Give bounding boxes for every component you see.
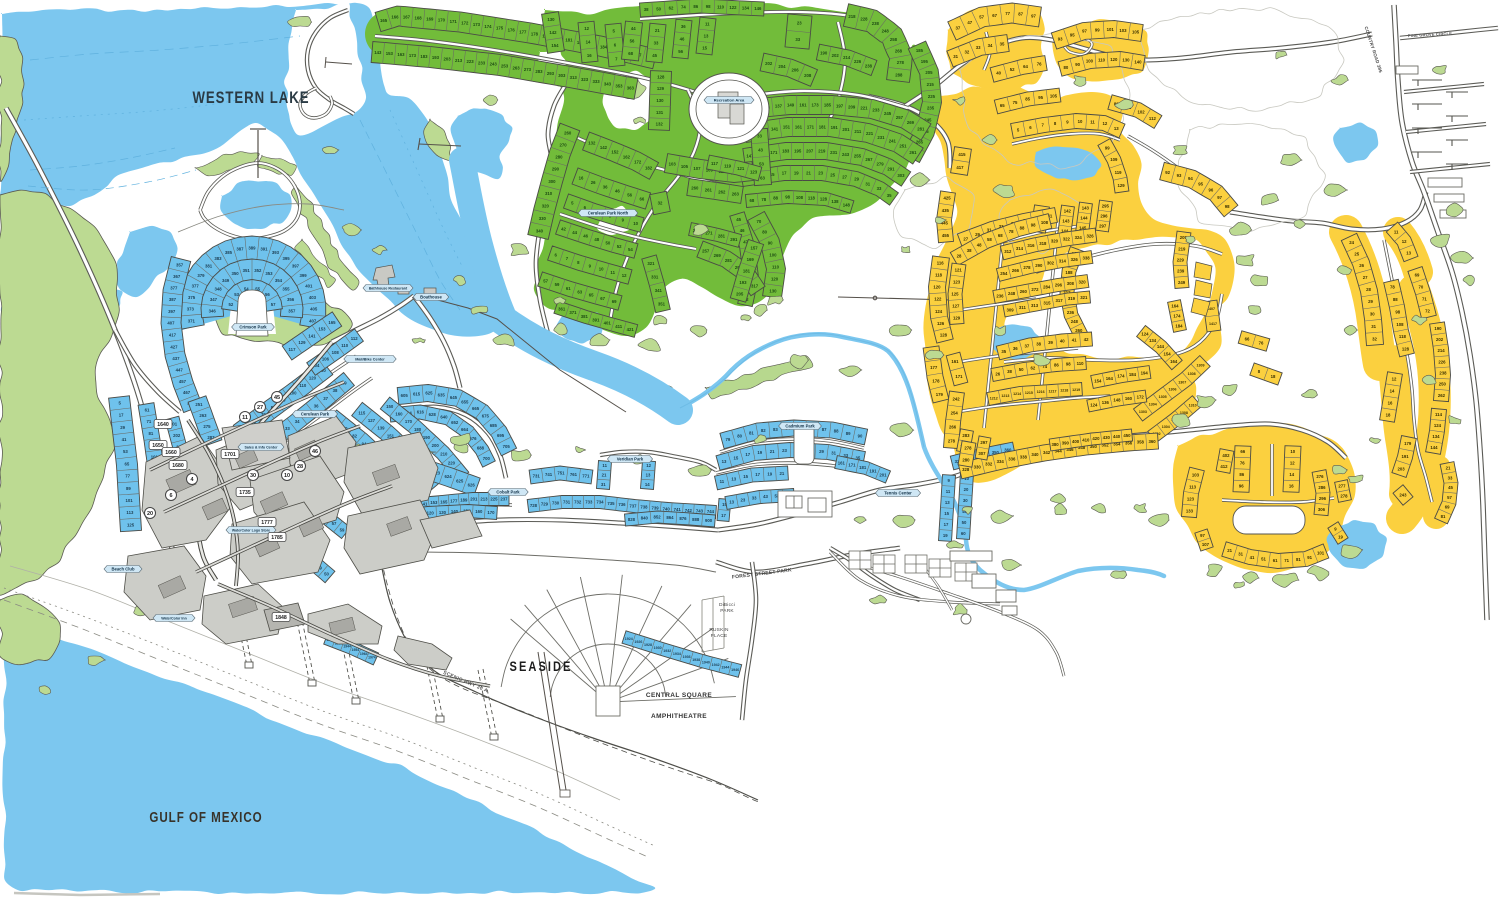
svg-text:1777: 1777	[261, 520, 273, 526]
svg-text:290: 290	[552, 167, 560, 172]
svg-text:640: 640	[440, 415, 448, 420]
svg-text:163: 163	[397, 52, 405, 57]
svg-text:138: 138	[831, 199, 839, 204]
svg-text:97: 97	[1217, 195, 1222, 200]
svg-text:389: 389	[248, 246, 256, 251]
svg-text:88: 88	[773, 196, 778, 201]
svg-text:732: 732	[574, 500, 582, 505]
svg-text:35: 35	[1001, 349, 1006, 354]
svg-text:46: 46	[740, 228, 745, 233]
svg-text:90: 90	[768, 241, 773, 246]
svg-text:303: 303	[558, 73, 566, 78]
svg-text:152: 152	[611, 150, 619, 155]
svg-text:645: 645	[450, 395, 458, 400]
svg-text:21: 21	[1446, 465, 1451, 470]
svg-text:421: 421	[627, 327, 635, 332]
svg-text:92: 92	[1165, 170, 1170, 175]
svg-text:88: 88	[1393, 297, 1398, 302]
svg-text:206: 206	[792, 68, 800, 73]
svg-text:40: 40	[996, 71, 1001, 76]
svg-text:95: 95	[1198, 182, 1203, 187]
svg-text:239: 239	[1177, 269, 1185, 274]
svg-text:178: 178	[932, 379, 940, 384]
svg-text:194: 194	[1141, 370, 1149, 375]
svg-text:75: 75	[1013, 100, 1018, 105]
svg-text:401: 401	[604, 321, 612, 326]
svg-text:177: 177	[930, 365, 938, 370]
svg-text:129: 129	[1118, 183, 1126, 188]
svg-text:278: 278	[1023, 265, 1031, 270]
svg-text:77: 77	[125, 474, 130, 479]
svg-text:237: 237	[500, 497, 508, 502]
svg-text:251: 251	[195, 402, 203, 407]
svg-text:28: 28	[297, 464, 303, 470]
svg-text:142: 142	[1064, 209, 1072, 214]
svg-text:281: 281	[917, 126, 925, 131]
svg-text:32: 32	[1372, 336, 1377, 341]
svg-text:98: 98	[1066, 362, 1071, 367]
svg-text:25: 25	[1354, 252, 1359, 257]
svg-text:63: 63	[760, 176, 765, 181]
svg-text:278: 278	[897, 60, 905, 65]
svg-text:10: 10	[1290, 449, 1295, 454]
svg-text:88: 88	[1020, 226, 1025, 231]
svg-text:312: 312	[1004, 249, 1012, 254]
svg-text:141: 141	[308, 333, 316, 338]
svg-text:728: 728	[530, 503, 538, 508]
svg-text:243: 243	[1399, 493, 1407, 498]
svg-text:333: 333	[593, 79, 601, 84]
svg-text:157: 157	[751, 245, 759, 250]
svg-text:273: 273	[524, 67, 532, 72]
svg-text:44: 44	[631, 26, 636, 31]
svg-text:318: 318	[1039, 241, 1047, 246]
svg-text:297: 297	[980, 440, 988, 445]
svg-text:1215: 1215	[1025, 391, 1033, 395]
svg-text:165: 165	[380, 18, 388, 23]
svg-text:12: 12	[1392, 377, 1397, 382]
svg-text:139: 139	[377, 426, 385, 431]
svg-text:417: 417	[956, 165, 964, 170]
svg-text:45: 45	[736, 217, 741, 222]
svg-text:113: 113	[126, 510, 134, 515]
svg-text:357: 357	[288, 309, 296, 314]
svg-text:19: 19	[767, 472, 772, 477]
svg-text:81: 81	[1296, 557, 1301, 562]
svg-text:54: 54	[628, 247, 633, 252]
svg-text:123: 123	[953, 279, 961, 284]
svg-text:255: 255	[854, 154, 862, 159]
svg-text:210: 210	[440, 452, 448, 457]
svg-text:15: 15	[944, 511, 949, 516]
svg-text:140: 140	[1134, 60, 1142, 65]
svg-text:27: 27	[1363, 275, 1368, 280]
svg-text:450: 450	[1123, 433, 1131, 438]
svg-text:63: 63	[577, 289, 582, 294]
svg-text:387: 387	[169, 297, 177, 302]
svg-text:36: 36	[314, 404, 319, 409]
svg-text:56: 56	[627, 193, 632, 198]
svg-text:170: 170	[405, 419, 413, 424]
svg-text:223: 223	[467, 59, 475, 64]
svg-text:143: 143	[1062, 219, 1070, 224]
svg-text:291: 291	[730, 237, 738, 242]
svg-text:625: 625	[456, 478, 464, 483]
svg-text:13: 13	[945, 500, 950, 505]
svg-text:76: 76	[1037, 62, 1042, 67]
svg-text:50: 50	[606, 241, 611, 246]
svg-text:248: 248	[1071, 319, 1079, 324]
svg-text:320: 320	[1079, 279, 1087, 284]
svg-text:142: 142	[600, 145, 608, 150]
svg-text:1680: 1680	[172, 463, 184, 469]
svg-text:179: 179	[936, 392, 944, 397]
svg-text:319: 319	[1068, 296, 1076, 301]
svg-text:1660: 1660	[165, 450, 177, 456]
svg-text:367: 367	[173, 274, 181, 279]
svg-text:Recreation Area: Recreation Area	[714, 98, 745, 103]
svg-text:99: 99	[1095, 28, 1100, 33]
svg-text:387: 387	[236, 247, 244, 252]
svg-text:93: 93	[1058, 37, 1063, 42]
svg-text:129: 129	[657, 86, 665, 91]
svg-text:410: 410	[1082, 437, 1090, 442]
svg-text:Sales & Info Center: Sales & Info Center	[245, 446, 279, 450]
svg-text:385: 385	[225, 250, 233, 255]
svg-text:245: 245	[884, 111, 892, 116]
svg-text:241: 241	[889, 139, 897, 144]
svg-text:97: 97	[1082, 29, 1087, 34]
svg-text:Cadmium Park: Cadmium Park	[785, 424, 815, 429]
svg-text:828: 828	[628, 517, 636, 522]
svg-text:326: 326	[1071, 257, 1079, 262]
svg-text:626: 626	[468, 482, 476, 487]
svg-text:615: 615	[413, 392, 421, 397]
svg-text:66: 66	[1245, 337, 1250, 342]
svg-text:260: 260	[564, 130, 572, 135]
svg-text:120: 120	[427, 510, 435, 515]
svg-text:23: 23	[741, 498, 746, 503]
svg-text:381: 381	[205, 264, 213, 269]
svg-text:743: 743	[696, 509, 704, 514]
svg-text:840: 840	[641, 516, 649, 521]
svg-text:214: 214	[1438, 348, 1446, 353]
svg-text:248: 248	[1008, 291, 1016, 296]
svg-text:130: 130	[1122, 58, 1130, 63]
svg-text:47: 47	[967, 20, 972, 25]
svg-text:32: 32	[658, 201, 663, 206]
svg-text:144: 144	[1430, 445, 1438, 450]
svg-text:74: 74	[681, 5, 686, 10]
svg-text:115: 115	[358, 410, 366, 415]
svg-text:57: 57	[543, 278, 548, 283]
svg-text:96: 96	[1209, 188, 1214, 193]
svg-text:76: 76	[1240, 461, 1245, 466]
svg-text:738: 738	[640, 504, 648, 509]
svg-text:71: 71	[147, 419, 152, 424]
svg-text:283: 283	[535, 69, 543, 74]
svg-text:102: 102	[1138, 109, 1146, 114]
svg-text:268: 268	[895, 48, 903, 53]
svg-text:1216: 1216	[1037, 390, 1045, 394]
svg-text:249: 249	[1178, 280, 1186, 285]
svg-text:36: 36	[1013, 346, 1018, 351]
svg-text:130: 130	[547, 17, 555, 22]
svg-text:70: 70	[757, 219, 762, 224]
svg-text:17: 17	[721, 513, 726, 518]
svg-text:81: 81	[1441, 514, 1446, 519]
svg-text:31: 31	[953, 54, 958, 59]
svg-text:78: 78	[1390, 285, 1395, 290]
svg-text:11: 11	[602, 463, 607, 468]
svg-text:129: 129	[298, 340, 306, 345]
svg-text:260: 260	[691, 186, 699, 191]
svg-text:221: 221	[866, 131, 874, 136]
svg-text:876: 876	[679, 516, 687, 521]
svg-text:76: 76	[1259, 341, 1264, 346]
svg-text:169: 169	[747, 257, 755, 262]
svg-text:29: 29	[819, 449, 824, 454]
svg-text:307: 307	[978, 451, 986, 456]
svg-text:295: 295	[1102, 204, 1110, 209]
svg-text:313: 313	[1031, 303, 1039, 308]
svg-text:263: 263	[513, 65, 521, 70]
svg-text:665: 665	[472, 406, 480, 411]
svg-text:108: 108	[796, 195, 804, 200]
svg-text:1310: 1310	[1189, 403, 1197, 407]
svg-text:105: 105	[681, 164, 689, 169]
svg-text:1932: 1932	[663, 649, 671, 653]
svg-text:1213: 1213	[1001, 394, 1009, 398]
svg-text:314: 314	[1059, 259, 1067, 264]
svg-text:314: 314	[1016, 246, 1024, 251]
svg-text:235: 235	[927, 106, 935, 111]
svg-text:736: 736	[618, 502, 626, 507]
svg-text:183: 183	[420, 54, 428, 59]
svg-text:395: 395	[283, 256, 291, 261]
svg-text:205: 205	[736, 292, 744, 297]
svg-text:191: 191	[1402, 454, 1410, 459]
svg-text:190: 190	[1434, 326, 1442, 331]
svg-text:169: 169	[426, 17, 434, 22]
svg-text:14: 14	[1390, 389, 1395, 394]
svg-text:390: 390	[1062, 440, 1070, 445]
svg-text:1735: 1735	[239, 490, 251, 496]
svg-text:336: 336	[1008, 457, 1016, 462]
svg-text:45: 45	[1448, 485, 1453, 490]
svg-text:13: 13	[1114, 126, 1119, 131]
svg-text:343: 343	[604, 81, 612, 86]
svg-text:321: 321	[1080, 295, 1088, 300]
svg-text:184: 184	[1129, 372, 1137, 377]
svg-text:243: 243	[490, 62, 498, 67]
svg-text:231: 231	[830, 150, 838, 155]
svg-text:161: 161	[951, 359, 959, 364]
svg-text:243: 243	[842, 152, 850, 157]
svg-text:313: 313	[570, 75, 578, 80]
svg-text:112: 112	[1149, 116, 1157, 121]
svg-text:28: 28	[1366, 287, 1371, 292]
svg-text:341: 341	[655, 288, 663, 293]
svg-text:108: 108	[1041, 220, 1049, 225]
svg-text:18: 18	[1271, 374, 1276, 379]
svg-text:310: 310	[545, 191, 553, 196]
svg-text:50: 50	[324, 572, 329, 577]
svg-text:61: 61	[566, 286, 571, 291]
svg-text:89: 89	[126, 486, 131, 491]
svg-text:380: 380	[1052, 442, 1060, 447]
svg-text:731: 731	[533, 474, 541, 479]
svg-text:119: 119	[724, 163, 732, 168]
svg-text:46: 46	[312, 449, 318, 455]
svg-text:171: 171	[807, 125, 815, 130]
svg-text:161: 161	[799, 103, 807, 108]
svg-text:154: 154	[1094, 378, 1102, 383]
svg-text:14: 14	[586, 40, 591, 45]
svg-text:107: 107	[693, 166, 701, 171]
svg-text:88: 88	[834, 428, 839, 433]
svg-text:188: 188	[1065, 270, 1073, 275]
svg-text:338: 338	[1083, 255, 1091, 260]
svg-text:340: 340	[536, 228, 544, 233]
svg-text:258: 258	[890, 37, 898, 42]
svg-text:173: 173	[473, 22, 481, 27]
svg-text:309: 309	[1007, 307, 1015, 312]
svg-text:181: 181	[743, 268, 751, 273]
svg-text:181: 181	[819, 125, 827, 130]
svg-text:278: 278	[1340, 494, 1348, 499]
svg-text:221: 221	[860, 106, 868, 111]
svg-text:233: 233	[872, 108, 880, 113]
svg-text:19: 19	[1338, 535, 1343, 540]
svg-text:402: 402	[1222, 453, 1230, 458]
svg-text:229: 229	[1177, 257, 1185, 262]
svg-text:11: 11	[705, 22, 710, 27]
svg-text:315: 315	[1043, 301, 1051, 306]
svg-text:146: 146	[754, 6, 762, 11]
svg-text:33: 33	[877, 186, 882, 191]
svg-text:353: 353	[265, 271, 273, 276]
svg-text:RUSKIN: RUSKIN	[709, 627, 729, 633]
svg-text:141: 141	[771, 126, 779, 131]
svg-text:231: 231	[877, 135, 885, 140]
svg-text:236: 236	[996, 293, 1004, 298]
svg-text:124: 124	[935, 309, 943, 314]
svg-text:437: 437	[172, 356, 180, 361]
svg-text:95: 95	[1038, 95, 1043, 100]
svg-text:124: 124	[1434, 423, 1442, 428]
svg-text:31: 31	[1371, 324, 1376, 329]
svg-text:108: 108	[1396, 322, 1404, 327]
svg-text:281: 281	[725, 258, 733, 263]
svg-text:11: 11	[1394, 229, 1399, 234]
svg-text:11: 11	[946, 489, 951, 494]
svg-text:20: 20	[147, 511, 153, 517]
svg-text:427: 427	[170, 344, 178, 349]
svg-text:1848: 1848	[275, 615, 287, 621]
svg-text:332: 332	[985, 462, 993, 467]
svg-text:130: 130	[656, 98, 664, 103]
svg-text:371: 371	[569, 310, 577, 315]
svg-text:17: 17	[119, 413, 124, 418]
svg-text:204: 204	[778, 64, 786, 69]
svg-text:Cerulean Park North: Cerulean Park North	[588, 211, 629, 216]
svg-text:1954: 1954	[352, 648, 360, 652]
svg-text:30: 30	[963, 498, 968, 503]
svg-text:457: 457	[179, 379, 187, 384]
svg-text:288: 288	[895, 72, 903, 77]
svg-text:Tennis Center: Tennis Center	[884, 491, 912, 496]
svg-text:38: 38	[967, 248, 972, 253]
svg-text:12: 12	[584, 26, 589, 31]
svg-text:225: 225	[490, 497, 498, 502]
svg-text:401: 401	[305, 283, 313, 288]
svg-text:59: 59	[555, 282, 560, 287]
svg-text:107: 107	[1202, 542, 1210, 547]
svg-text:33: 33	[285, 426, 290, 431]
svg-text:253: 253	[501, 63, 509, 68]
svg-text:742: 742	[685, 508, 693, 513]
svg-text:277: 277	[1338, 484, 1346, 489]
svg-text:20: 20	[964, 487, 969, 492]
svg-text:122: 122	[934, 297, 942, 302]
svg-text:17: 17	[755, 472, 760, 477]
svg-text:17: 17	[944, 522, 949, 527]
svg-text:70: 70	[1419, 284, 1424, 289]
svg-text:733: 733	[585, 500, 593, 505]
svg-text:1940: 1940	[702, 661, 710, 665]
svg-text:132: 132	[656, 122, 664, 127]
svg-text:250: 250	[1439, 382, 1447, 387]
svg-text:WaterColor Logo Store: WaterColor Logo Store	[232, 529, 270, 533]
svg-text:38: 38	[1007, 369, 1012, 374]
svg-text:16: 16	[587, 53, 592, 58]
svg-text:330: 330	[974, 464, 982, 469]
svg-text:50: 50	[962, 520, 967, 525]
svg-text:1217: 1217	[1049, 390, 1057, 394]
svg-text:852: 852	[654, 515, 662, 520]
svg-text:236: 236	[1067, 310, 1075, 315]
svg-text:685: 685	[490, 423, 498, 428]
svg-text:57: 57	[1447, 495, 1452, 500]
svg-text:219: 219	[1178, 246, 1186, 251]
svg-text:164: 164	[1171, 304, 1179, 309]
svg-text:38: 38	[644, 7, 649, 12]
svg-text:1307: 1307	[1178, 380, 1186, 384]
svg-text:261: 261	[909, 150, 917, 155]
svg-text:179: 179	[1404, 441, 1412, 446]
svg-text:46: 46	[583, 234, 588, 239]
svg-text:278: 278	[964, 446, 972, 451]
svg-text:338: 338	[1020, 454, 1028, 459]
svg-text:62: 62	[1031, 365, 1036, 370]
svg-text:284: 284	[1043, 285, 1051, 290]
svg-text:103: 103	[1192, 472, 1200, 477]
svg-text:164: 164	[1106, 376, 1114, 381]
svg-text:225: 225	[928, 94, 936, 99]
svg-text:200: 200	[432, 443, 440, 448]
svg-text:134: 134	[742, 6, 750, 11]
svg-text:48: 48	[594, 237, 599, 242]
svg-text:78: 78	[1009, 229, 1014, 234]
svg-text:30: 30	[250, 473, 256, 479]
svg-text:16: 16	[579, 176, 584, 181]
svg-text:744: 744	[707, 509, 715, 514]
svg-text:213: 213	[480, 497, 488, 502]
svg-text:98: 98	[1395, 309, 1400, 314]
svg-text:175: 175	[496, 26, 504, 31]
svg-text:101: 101	[1317, 551, 1325, 556]
